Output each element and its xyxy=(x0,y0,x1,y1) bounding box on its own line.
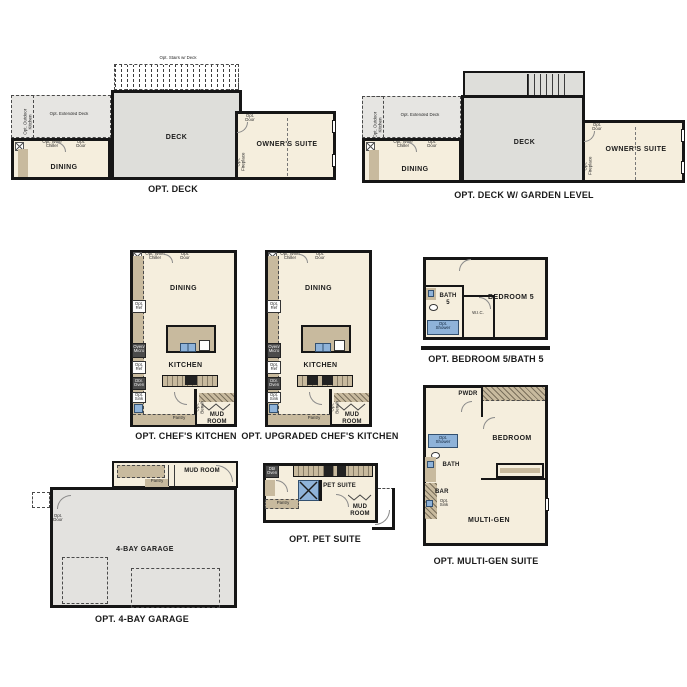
island-sink-icon xyxy=(315,343,331,352)
deck-label: DECK xyxy=(149,133,204,142)
top-counter xyxy=(293,465,373,477)
oven-micro-label: Oven/ Micro xyxy=(267,345,281,354)
opt-sink-label: Opt. Sink xyxy=(267,393,281,402)
pet-wash-icon xyxy=(298,480,319,501)
mudroom-door-arc xyxy=(216,465,233,482)
mud-room-label: MUD ROOM xyxy=(344,504,376,518)
opt-shower-label: Opt. Shower xyxy=(433,322,453,331)
left-counter xyxy=(133,256,144,414)
opt-ref-label: Opt. Ref xyxy=(132,302,146,311)
pet-suite-label: PET SUITE xyxy=(323,483,356,490)
coat-hooks-icon xyxy=(337,403,367,411)
interior-wall xyxy=(462,285,464,338)
interior-wall xyxy=(481,387,483,417)
interior-wall xyxy=(425,285,462,287)
oven-micro-box: Oven/ Micro xyxy=(132,343,146,358)
door-label: Opt. Door xyxy=(73,140,89,149)
bath5-label: BATH 5 xyxy=(438,293,458,307)
dbl-oven-box: Dbl. Oven xyxy=(267,377,281,390)
bedroom-closet xyxy=(496,463,544,478)
opt-ref-label: Opt. Ref xyxy=(267,302,281,311)
dbl-oven-box: Dbl. Oven xyxy=(132,377,146,390)
cooktop-icon xyxy=(185,376,197,385)
pantry-label: Pantry xyxy=(170,416,189,421)
plan-pet-suite: Dbl Oven Pantry PET SUITE MUD ROOM OPT. … xyxy=(260,458,400,552)
window-icon xyxy=(332,154,336,167)
mudroom-pantry-strip: Pantry MUD ROOM xyxy=(112,461,238,488)
opt-stairs-area xyxy=(114,64,239,90)
plan-caption: OPT. CHEF'S KITCHEN xyxy=(119,431,253,441)
kitchen-label: KITCHEN xyxy=(293,361,348,370)
toilet-icon xyxy=(429,304,438,311)
fireplace-label: Opt. Fireplace xyxy=(237,150,247,174)
deck-area: DECK xyxy=(111,90,242,180)
plan-caption: OPT. BEDROOM 5/BATH 5 xyxy=(421,354,551,364)
opt-ref-label: Opt. Ref xyxy=(132,363,146,372)
window-icon xyxy=(545,498,549,511)
dbl-oven-label: Dbl Oven xyxy=(265,467,279,476)
garage-label: 4-BAY GARAGE xyxy=(113,545,177,554)
owners-suite-label: OWNER'S SUITE xyxy=(605,145,667,154)
plan-bedroom5-bath5: BEDROOM 5 BATH 5 Opt. Shower W.I.C. OPT.… xyxy=(421,243,553,367)
plan-multigen-suite: PWDR Opt. Shower BATH BEDROOM BAR Opt. S… xyxy=(421,378,553,570)
buffet-cabinet xyxy=(18,149,28,177)
dining-label: DINING xyxy=(156,284,211,293)
exterior-wall xyxy=(392,488,395,530)
plan-caption: OPT. MULTI-GEN SUITE xyxy=(415,556,557,566)
pantry-label: Pantry xyxy=(305,416,324,421)
dbl-oven-label: Dbl. Oven xyxy=(132,379,146,388)
opt-door-label: Opt. Door xyxy=(49,514,66,523)
plan-caption: OPT. 4-BAY GARAGE xyxy=(72,614,212,624)
opt-sink-label: Opt. Sink xyxy=(132,393,146,402)
coat-hooks-icon xyxy=(202,403,232,411)
plan-caption: OPT. PET SUITE xyxy=(262,534,388,544)
cooktop-icon xyxy=(322,376,333,385)
opt-shower-area: Opt. Shower xyxy=(428,434,458,448)
bedroom-label: BEDROOM xyxy=(483,434,541,443)
plan-4bay-garage: Pantry MUD ROOM 4-BAY GARAGE Opt. Door O… xyxy=(30,458,248,633)
island-sink-icon xyxy=(180,343,196,352)
island-appliance-icon xyxy=(199,340,210,351)
pwdr-label: PWDR xyxy=(455,391,481,398)
floor-plan-sheet: Opt. Stairs w/ Deck Opt. Extended Deck O… xyxy=(0,0,687,687)
opt-ref-box: Opt. Ref xyxy=(267,300,281,313)
wine-chiller-label: Opt. Wine Chiller xyxy=(145,252,165,261)
dining-label: DINING xyxy=(390,165,440,174)
plan-caption: OPT. DECK xyxy=(73,184,273,194)
outdoor-kitchen-label: Opt. Outdoor Kitchen xyxy=(24,104,34,140)
sink-fixture xyxy=(428,290,434,297)
side-door-arc xyxy=(57,495,71,509)
owners-suite-label: OWNER'S SUITE xyxy=(256,140,318,149)
opt-door-area xyxy=(32,492,50,508)
opt-ref-box: Opt. Ref xyxy=(132,300,146,313)
stairs-label: Opt. Stairs w/ Deck xyxy=(128,56,229,61)
bar-label: BAR xyxy=(435,489,453,496)
pantry-cabinet: Pantry xyxy=(265,499,299,509)
pantry-cabinet xyxy=(117,465,165,478)
deck-area: DECK xyxy=(461,95,585,183)
opt-ref-label: Opt. Ref xyxy=(267,363,281,372)
mud-room-label: MUD ROOM xyxy=(184,468,220,475)
opt-ref-box: Opt. Ref xyxy=(132,361,146,374)
upper-deck-walkway xyxy=(463,71,585,97)
extended-deck-label: Opt. Extended Deck xyxy=(395,113,445,118)
sink-fixture xyxy=(426,500,433,507)
dbl-oven-box: Dbl Oven xyxy=(265,465,279,478)
garage-bay-outline xyxy=(62,557,108,604)
opt-ref-box: Opt. Ref xyxy=(267,361,281,374)
cooktop-icon xyxy=(307,376,318,385)
interior-wall xyxy=(481,478,547,480)
exterior-wall xyxy=(372,527,395,530)
mud-room-label: MUD ROOM xyxy=(201,412,233,426)
island-appliance-icon xyxy=(334,340,345,351)
door-label: Opt. Door xyxy=(177,252,193,261)
interior-wall xyxy=(319,480,322,501)
fireplace-label: Opt. Fireplace xyxy=(584,154,594,178)
plan-upgraded-chefs-kitchen: Opt. Wine Chiller Opt. Door DINING Opt. … xyxy=(263,246,377,446)
plan-opt-deck: Opt. Stairs w/ Deck Opt. Extended Deck O… xyxy=(8,58,335,203)
wic-label: W.I.C. xyxy=(469,311,486,316)
lower-level-wall xyxy=(421,346,550,350)
window-icon xyxy=(681,129,685,142)
dining-label: DINING xyxy=(291,284,346,293)
cooktop-icon xyxy=(337,466,346,476)
plan-chefs-kitchen: Opt. Wine Chiller Opt. Door DINING Opt. … xyxy=(128,246,242,446)
dbl-oven-label: Dbl. Oven xyxy=(267,379,281,388)
oven-micro-label: Oven/ Micro xyxy=(132,345,146,354)
oven-micro-box: Oven/ Micro xyxy=(267,343,281,358)
mud-room-label: MUD ROOM xyxy=(336,412,368,426)
coat-hooks-icon xyxy=(348,494,372,501)
cooktop-icon xyxy=(324,466,333,476)
window-icon xyxy=(332,120,336,133)
entry-door-arc xyxy=(375,510,390,525)
garage-room: 4-BAY GARAGE xyxy=(50,487,237,608)
left-counter xyxy=(265,480,275,496)
plan-caption: OPT. UPGRADED CHEF'S KITCHEN xyxy=(235,431,405,441)
opt-sink-label: Opt. Sink xyxy=(437,499,451,508)
closet-shelf xyxy=(500,468,540,473)
left-counter xyxy=(268,256,279,414)
plan-opt-deck-garden: DECK Opt. Extended Deck Opt. Outdoor Kit… xyxy=(359,58,687,208)
vanity-cabinet xyxy=(425,457,436,482)
bath-label: BATH xyxy=(440,462,462,469)
lockers-icon xyxy=(168,465,180,486)
plan-caption: OPT. DECK W/ GARDEN LEVEL xyxy=(384,190,664,200)
deck-label: DECK xyxy=(497,138,552,147)
closet-shelving xyxy=(481,387,545,401)
opt-sink-box: Opt. Sink xyxy=(267,392,281,403)
door-label: Opt. Door xyxy=(312,252,328,261)
sink-fixture xyxy=(427,461,434,468)
garage-bay-outline xyxy=(131,568,220,608)
multigen-label: MULTI-GEN xyxy=(459,516,519,525)
dining-label: DINING xyxy=(39,163,89,172)
extended-deck-label: Opt. Extended Deck xyxy=(44,112,94,117)
kitchen-label: KITCHEN xyxy=(158,361,213,370)
window-icon xyxy=(681,161,685,174)
buffet-cabinet xyxy=(369,150,379,180)
vanity-cabinet xyxy=(426,288,436,300)
pantry-label: Pantry xyxy=(148,479,167,484)
door-label: Opt. Door xyxy=(424,140,440,149)
stairs-icon xyxy=(527,74,565,96)
opt-shower-area: Opt. Shower xyxy=(427,320,459,335)
wine-chiller-label: Opt. Wine Chiller xyxy=(280,252,300,261)
sink-fixture xyxy=(269,404,278,413)
pantry-label: Pantry xyxy=(274,501,293,506)
opt-shower-label: Opt. Shower xyxy=(434,436,453,445)
opt-sink-box: Opt. Sink xyxy=(132,392,146,403)
sink-fixture xyxy=(134,404,143,413)
bedroom5-label: BEDROOM 5 xyxy=(481,293,541,302)
